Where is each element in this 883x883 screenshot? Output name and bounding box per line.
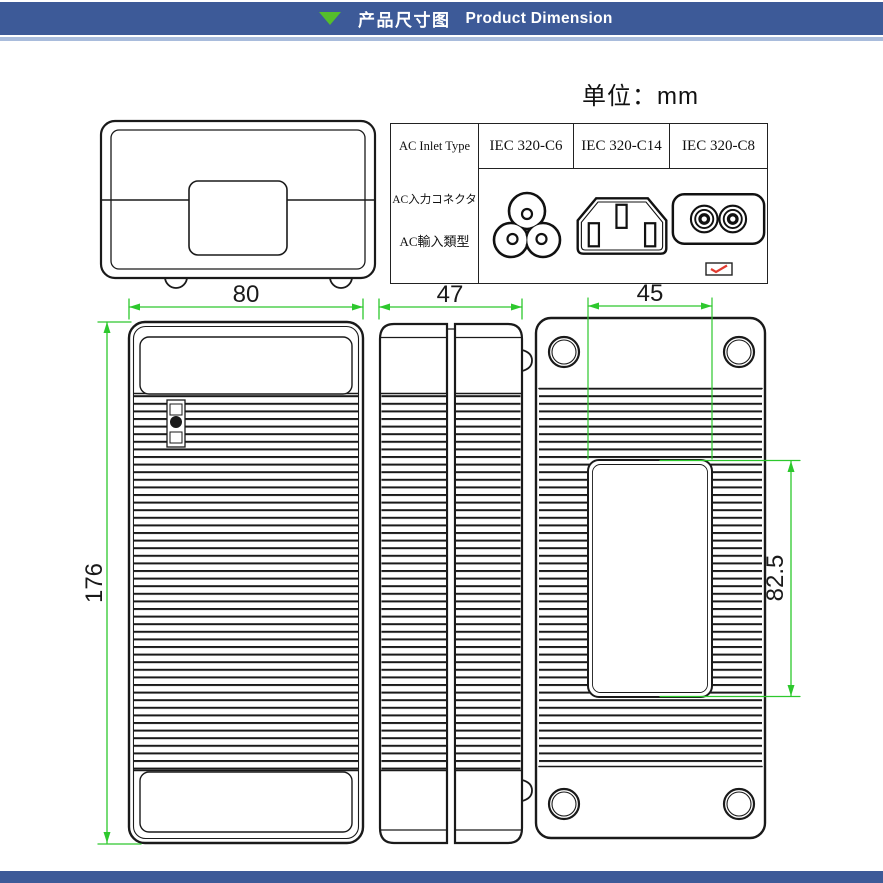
side-ribs-left [382, 393, 447, 771]
top-view-smooth-panel-top [140, 337, 352, 394]
footer-bar [0, 871, 883, 883]
side-ribs-right [456, 393, 521, 771]
screw-boss-bottom-right [724, 789, 754, 819]
led-dot [170, 416, 182, 428]
page: 产品尺寸图 Product Dimension 单位：mm AC Inlet T… [0, 0, 883, 883]
side-bump-top [522, 350, 532, 371]
top-view-smooth-panel-bottom [140, 772, 352, 832]
screw-boss-top-left [549, 337, 579, 367]
dim-text-82-5: 82.5 [762, 555, 789, 602]
dim-text-45: 45 [637, 280, 664, 307]
screw-boss-top-right [724, 337, 754, 367]
top-view-ribs [134, 393, 358, 771]
front-view [101, 121, 375, 288]
side-bump-bottom [522, 780, 532, 801]
side-view [380, 324, 532, 843]
label-recess [588, 460, 712, 697]
led-indicator [167, 400, 185, 447]
bottom-view [536, 318, 765, 838]
dim-text-47: 47 [437, 281, 464, 308]
dim-text-80: 80 [233, 281, 260, 308]
dim-text-176: 176 [81, 563, 108, 603]
front-label-plate [189, 181, 287, 255]
screw-boss-bottom-left [549, 789, 579, 819]
dimension-drawing: 80 47 45 176 82.5 [0, 0, 883, 883]
top-view [129, 322, 363, 843]
